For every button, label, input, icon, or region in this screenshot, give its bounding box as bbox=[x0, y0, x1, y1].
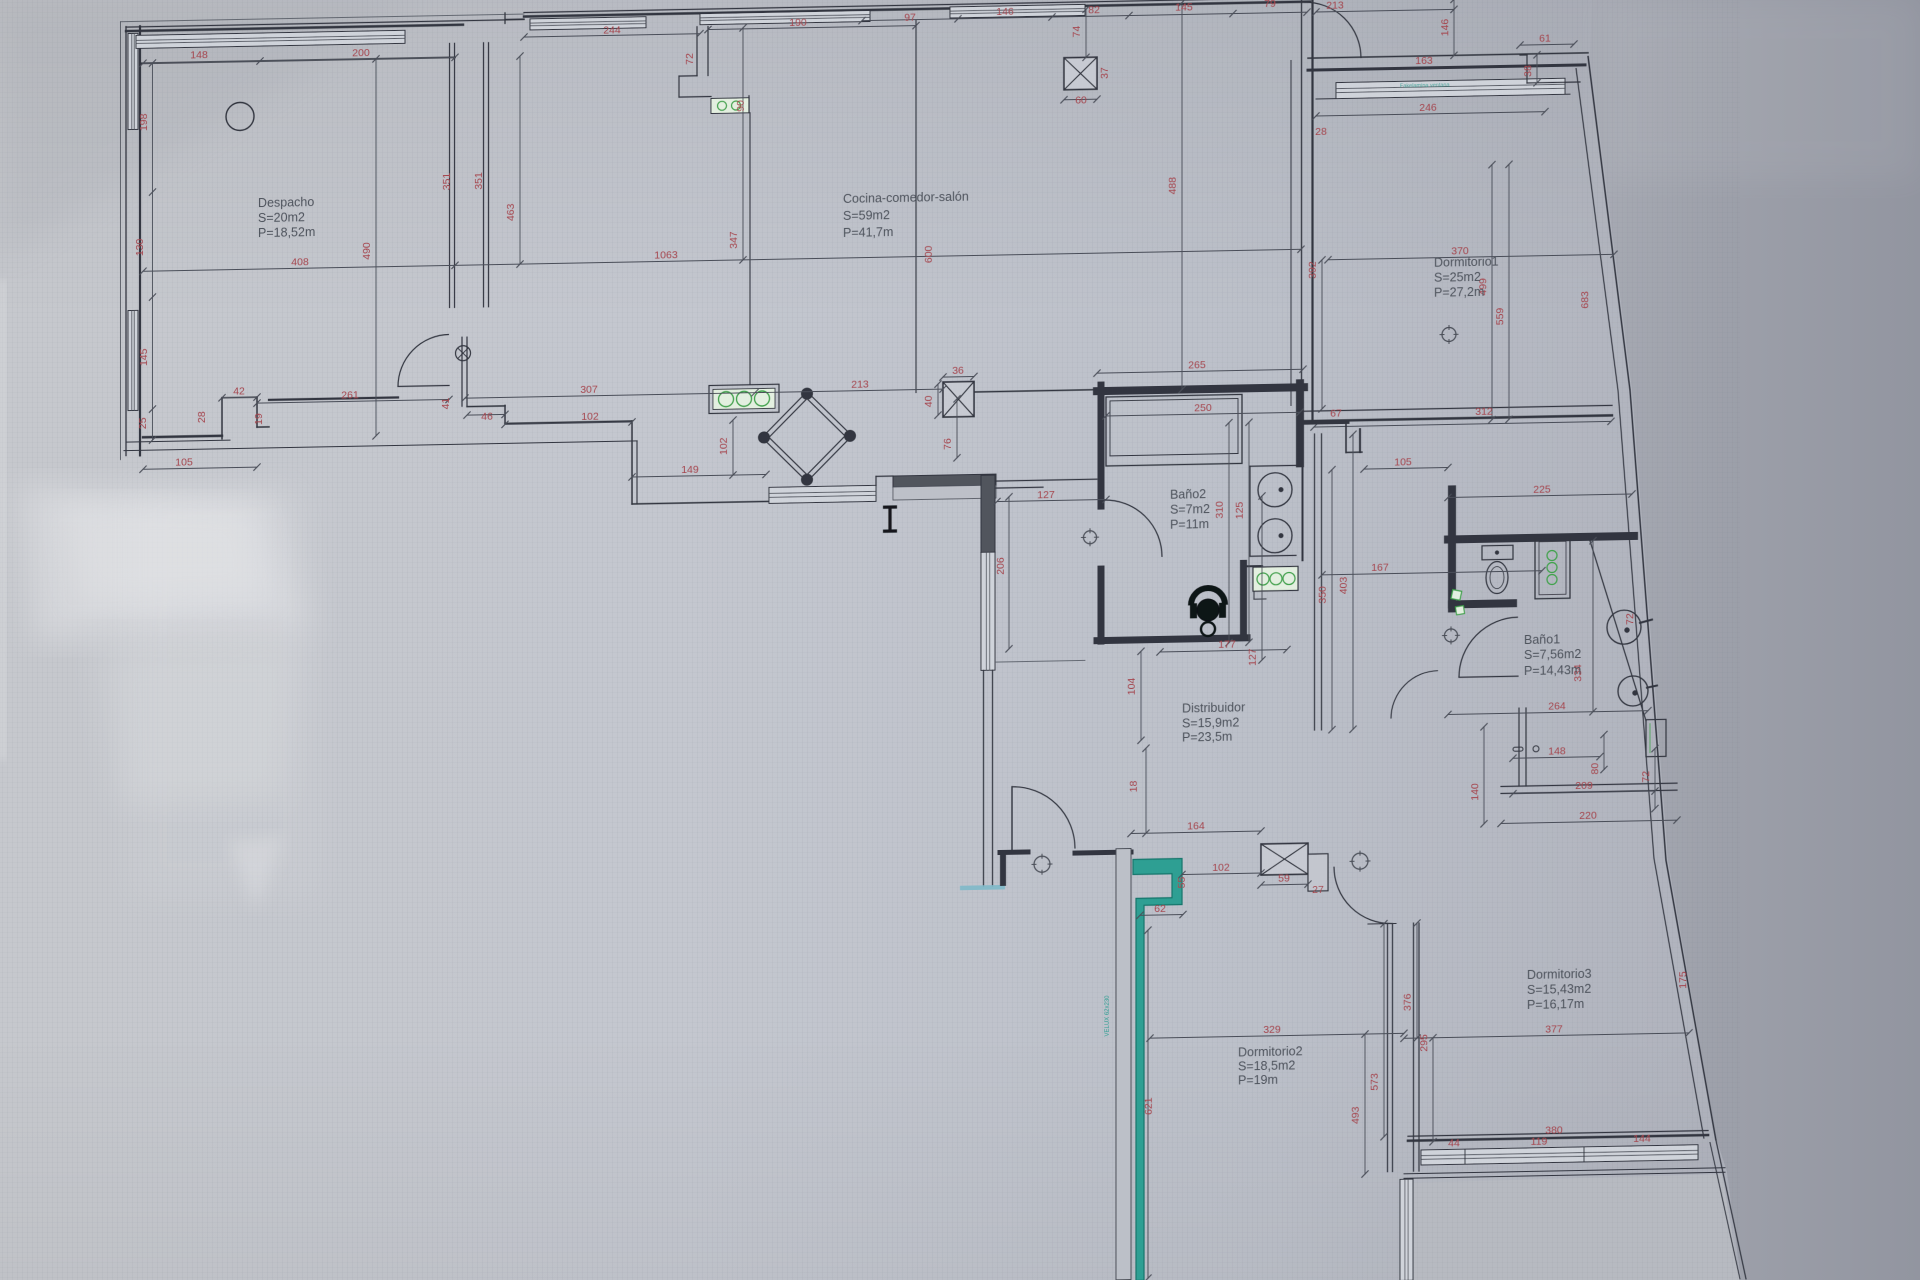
svg-text:74: 74 bbox=[1071, 25, 1083, 37]
svg-text:102: 102 bbox=[581, 411, 599, 423]
svg-text:S=20m2: S=20m2 bbox=[258, 210, 305, 225]
svg-text:Distribuidor: Distribuidor bbox=[1182, 700, 1245, 715]
svg-text:347: 347 bbox=[728, 231, 740, 249]
svg-text:S=25m2: S=25m2 bbox=[1434, 270, 1481, 285]
svg-text:VELUX 62x230: VELUX 62x230 bbox=[1105, 995, 1111, 1037]
svg-text:P=19m: P=19m bbox=[1238, 1073, 1278, 1088]
svg-text:175: 175 bbox=[1677, 971, 1689, 989]
svg-text:82: 82 bbox=[1088, 4, 1100, 16]
svg-text:376: 376 bbox=[1402, 993, 1414, 1011]
svg-text:493: 493 bbox=[1350, 1106, 1362, 1124]
svg-text:408: 408 bbox=[291, 256, 309, 268]
svg-text:S=15,9m2: S=15,9m2 bbox=[1182, 715, 1239, 730]
svg-text:55: 55 bbox=[1176, 876, 1188, 888]
svg-text:105: 105 bbox=[1394, 456, 1412, 468]
svg-text:79: 79 bbox=[1264, 0, 1276, 10]
svg-text:1063: 1063 bbox=[654, 249, 678, 261]
svg-text:59: 59 bbox=[1278, 872, 1290, 884]
svg-text:600: 600 bbox=[923, 245, 935, 263]
svg-text:28: 28 bbox=[1315, 126, 1327, 138]
svg-text:220: 220 bbox=[1579, 810, 1597, 822]
svg-text:25: 25 bbox=[137, 417, 149, 429]
svg-text:307: 307 bbox=[580, 384, 598, 396]
svg-text:P=41,7m: P=41,7m bbox=[843, 225, 893, 240]
svg-text:148: 148 bbox=[190, 49, 208, 61]
svg-text:S=18,5m2: S=18,5m2 bbox=[1238, 1058, 1295, 1073]
svg-text:329: 329 bbox=[1263, 1024, 1281, 1036]
svg-text:190: 190 bbox=[789, 17, 807, 29]
svg-text:146: 146 bbox=[1439, 19, 1451, 37]
svg-text:463: 463 bbox=[505, 203, 517, 221]
svg-text:42: 42 bbox=[233, 385, 245, 397]
svg-text:206: 206 bbox=[995, 557, 1007, 575]
svg-text:P=23,5m: P=23,5m bbox=[1182, 730, 1232, 745]
svg-text:67: 67 bbox=[1330, 408, 1342, 420]
svg-text:102: 102 bbox=[718, 437, 730, 455]
svg-text:90: 90 bbox=[735, 100, 747, 112]
svg-text:46: 46 bbox=[481, 411, 493, 423]
svg-text:Baño1: Baño1 bbox=[1524, 632, 1560, 647]
svg-text:380: 380 bbox=[1545, 1124, 1563, 1136]
svg-text:P=16,17m: P=16,17m bbox=[1527, 997, 1584, 1012]
svg-text:200: 200 bbox=[352, 47, 370, 59]
svg-text:102: 102 bbox=[1212, 862, 1230, 874]
svg-text:60: 60 bbox=[1075, 94, 1087, 106]
svg-text:198: 198 bbox=[138, 113, 150, 131]
svg-text:145: 145 bbox=[1175, 1, 1193, 13]
svg-text:140: 140 bbox=[1469, 783, 1481, 801]
svg-text:44: 44 bbox=[1448, 1137, 1460, 1149]
svg-text:41: 41 bbox=[440, 397, 452, 409]
svg-text:Baño2: Baño2 bbox=[1170, 487, 1206, 502]
svg-text:488: 488 bbox=[1167, 177, 1179, 195]
svg-text:27: 27 bbox=[1312, 884, 1324, 896]
svg-text:127: 127 bbox=[1037, 489, 1055, 501]
svg-text:246: 246 bbox=[1419, 102, 1437, 114]
svg-text:S=7m2: S=7m2 bbox=[1170, 502, 1210, 517]
svg-text:19: 19 bbox=[253, 413, 265, 425]
svg-text:130: 130 bbox=[134, 238, 146, 256]
svg-text:S=15,43m2: S=15,43m2 bbox=[1527, 982, 1591, 997]
svg-text:295: 295 bbox=[1418, 1034, 1430, 1052]
svg-text:310: 310 bbox=[1214, 501, 1226, 519]
svg-text:125: 125 bbox=[1234, 501, 1246, 519]
svg-text:104: 104 bbox=[1126, 677, 1138, 695]
svg-text:P=18,52m: P=18,52m bbox=[258, 225, 315, 240]
svg-text:72: 72 bbox=[684, 53, 696, 65]
svg-text:Dormitorio3: Dormitorio3 bbox=[1527, 967, 1592, 982]
svg-text:148: 148 bbox=[1548, 745, 1566, 757]
svg-text:72: 72 bbox=[1640, 771, 1652, 783]
svg-text:145: 145 bbox=[138, 348, 150, 366]
svg-text:213: 213 bbox=[851, 378, 869, 390]
svg-text:76: 76 bbox=[942, 438, 954, 450]
svg-text:265: 265 bbox=[1188, 359, 1206, 371]
svg-text:105: 105 bbox=[175, 456, 193, 468]
svg-text:264: 264 bbox=[1548, 700, 1566, 712]
svg-text:40: 40 bbox=[923, 395, 935, 407]
svg-text:351: 351 bbox=[441, 172, 453, 190]
svg-text:P=14,43m: P=14,43m bbox=[1524, 663, 1581, 678]
svg-text:177: 177 bbox=[1218, 639, 1236, 651]
svg-text:Fakelamina ventana: Fakelamina ventana bbox=[1400, 82, 1450, 89]
svg-text:146: 146 bbox=[996, 6, 1014, 18]
svg-text:36: 36 bbox=[952, 365, 964, 377]
svg-text:Cocina-comedor-salón: Cocina-comedor-salón bbox=[843, 190, 969, 206]
svg-text:351: 351 bbox=[473, 172, 485, 190]
svg-text:683: 683 bbox=[1579, 291, 1591, 309]
svg-text:127: 127 bbox=[1247, 648, 1259, 666]
svg-text:213: 213 bbox=[1326, 0, 1344, 12]
svg-text:80: 80 bbox=[1589, 763, 1601, 775]
svg-text:244: 244 bbox=[603, 24, 621, 36]
svg-text:P=27,2m: P=27,2m bbox=[1434, 285, 1484, 300]
svg-text:164: 164 bbox=[1187, 820, 1205, 832]
svg-text:312: 312 bbox=[1475, 406, 1493, 418]
svg-text:377: 377 bbox=[1545, 1023, 1563, 1035]
svg-text:209: 209 bbox=[1575, 780, 1593, 792]
svg-text:Dormitorio2: Dormitorio2 bbox=[1238, 1044, 1303, 1059]
svg-text:62: 62 bbox=[1154, 903, 1166, 915]
svg-text:261: 261 bbox=[341, 389, 359, 401]
svg-text:P=11m: P=11m bbox=[1170, 517, 1209, 532]
svg-text:18: 18 bbox=[1128, 780, 1140, 792]
svg-text:72: 72 bbox=[1624, 613, 1636, 625]
svg-text:S=7,56m2: S=7,56m2 bbox=[1524, 647, 1581, 662]
svg-text:167: 167 bbox=[1371, 562, 1389, 574]
svg-text:490: 490 bbox=[361, 242, 373, 260]
svg-text:149: 149 bbox=[681, 464, 699, 476]
svg-text:28: 28 bbox=[196, 411, 208, 423]
svg-text:Dormitorio1: Dormitorio1 bbox=[1434, 255, 1499, 270]
svg-text:225: 225 bbox=[1533, 484, 1551, 496]
svg-text:559: 559 bbox=[1494, 307, 1506, 325]
svg-text:350: 350 bbox=[1317, 586, 1329, 604]
svg-text:250: 250 bbox=[1194, 402, 1212, 414]
svg-text:Despacho: Despacho bbox=[258, 195, 314, 210]
svg-text:S=59m2: S=59m2 bbox=[843, 208, 890, 223]
svg-text:61: 61 bbox=[1539, 33, 1551, 45]
svg-text:119: 119 bbox=[1531, 1136, 1548, 1148]
svg-text:621: 621 bbox=[1143, 1097, 1155, 1115]
svg-text:573: 573 bbox=[1369, 1073, 1381, 1091]
svg-text:144: 144 bbox=[1633, 1133, 1651, 1145]
svg-text:97: 97 bbox=[904, 12, 916, 24]
svg-text:163: 163 bbox=[1415, 55, 1433, 67]
svg-text:37: 37 bbox=[1099, 67, 1111, 79]
svg-text:403: 403 bbox=[1338, 576, 1350, 594]
svg-text:38: 38 bbox=[1522, 65, 1534, 77]
svg-text:392: 392 bbox=[1307, 261, 1319, 279]
